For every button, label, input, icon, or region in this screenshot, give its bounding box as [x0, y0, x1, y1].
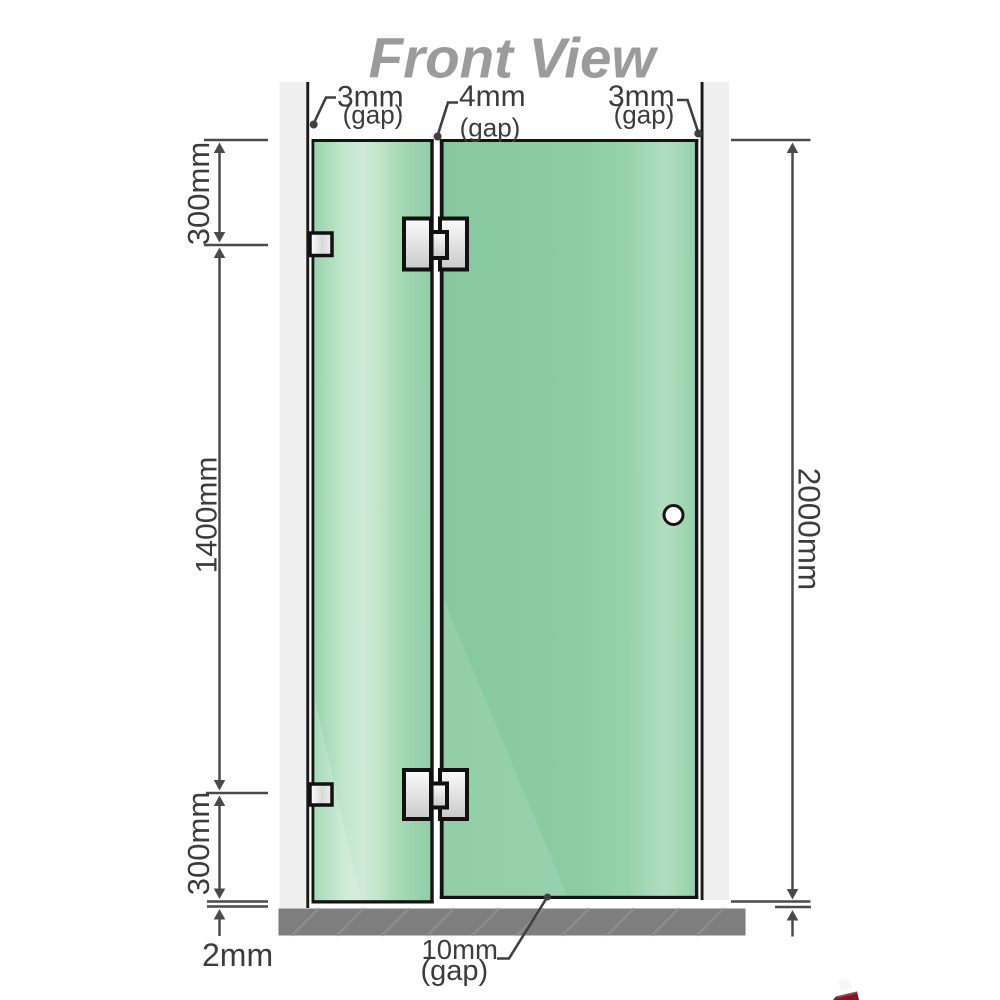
- svg-text:(gap): (gap): [614, 100, 675, 130]
- svg-text:2mm: 2mm: [202, 937, 273, 973]
- svg-text:(gap): (gap): [421, 955, 489, 987]
- svg-text:(gap): (gap): [343, 100, 404, 130]
- svg-text:300mm: 300mm: [181, 142, 216, 245]
- svg-text:2000mm: 2000mm: [792, 468, 828, 591]
- svg-text:1400mm: 1400mm: [191, 457, 224, 574]
- svg-text:(gap): (gap): [460, 113, 521, 143]
- svg-text:300mm: 300mm: [181, 792, 216, 895]
- svg-text:4mm: 4mm: [459, 80, 526, 113]
